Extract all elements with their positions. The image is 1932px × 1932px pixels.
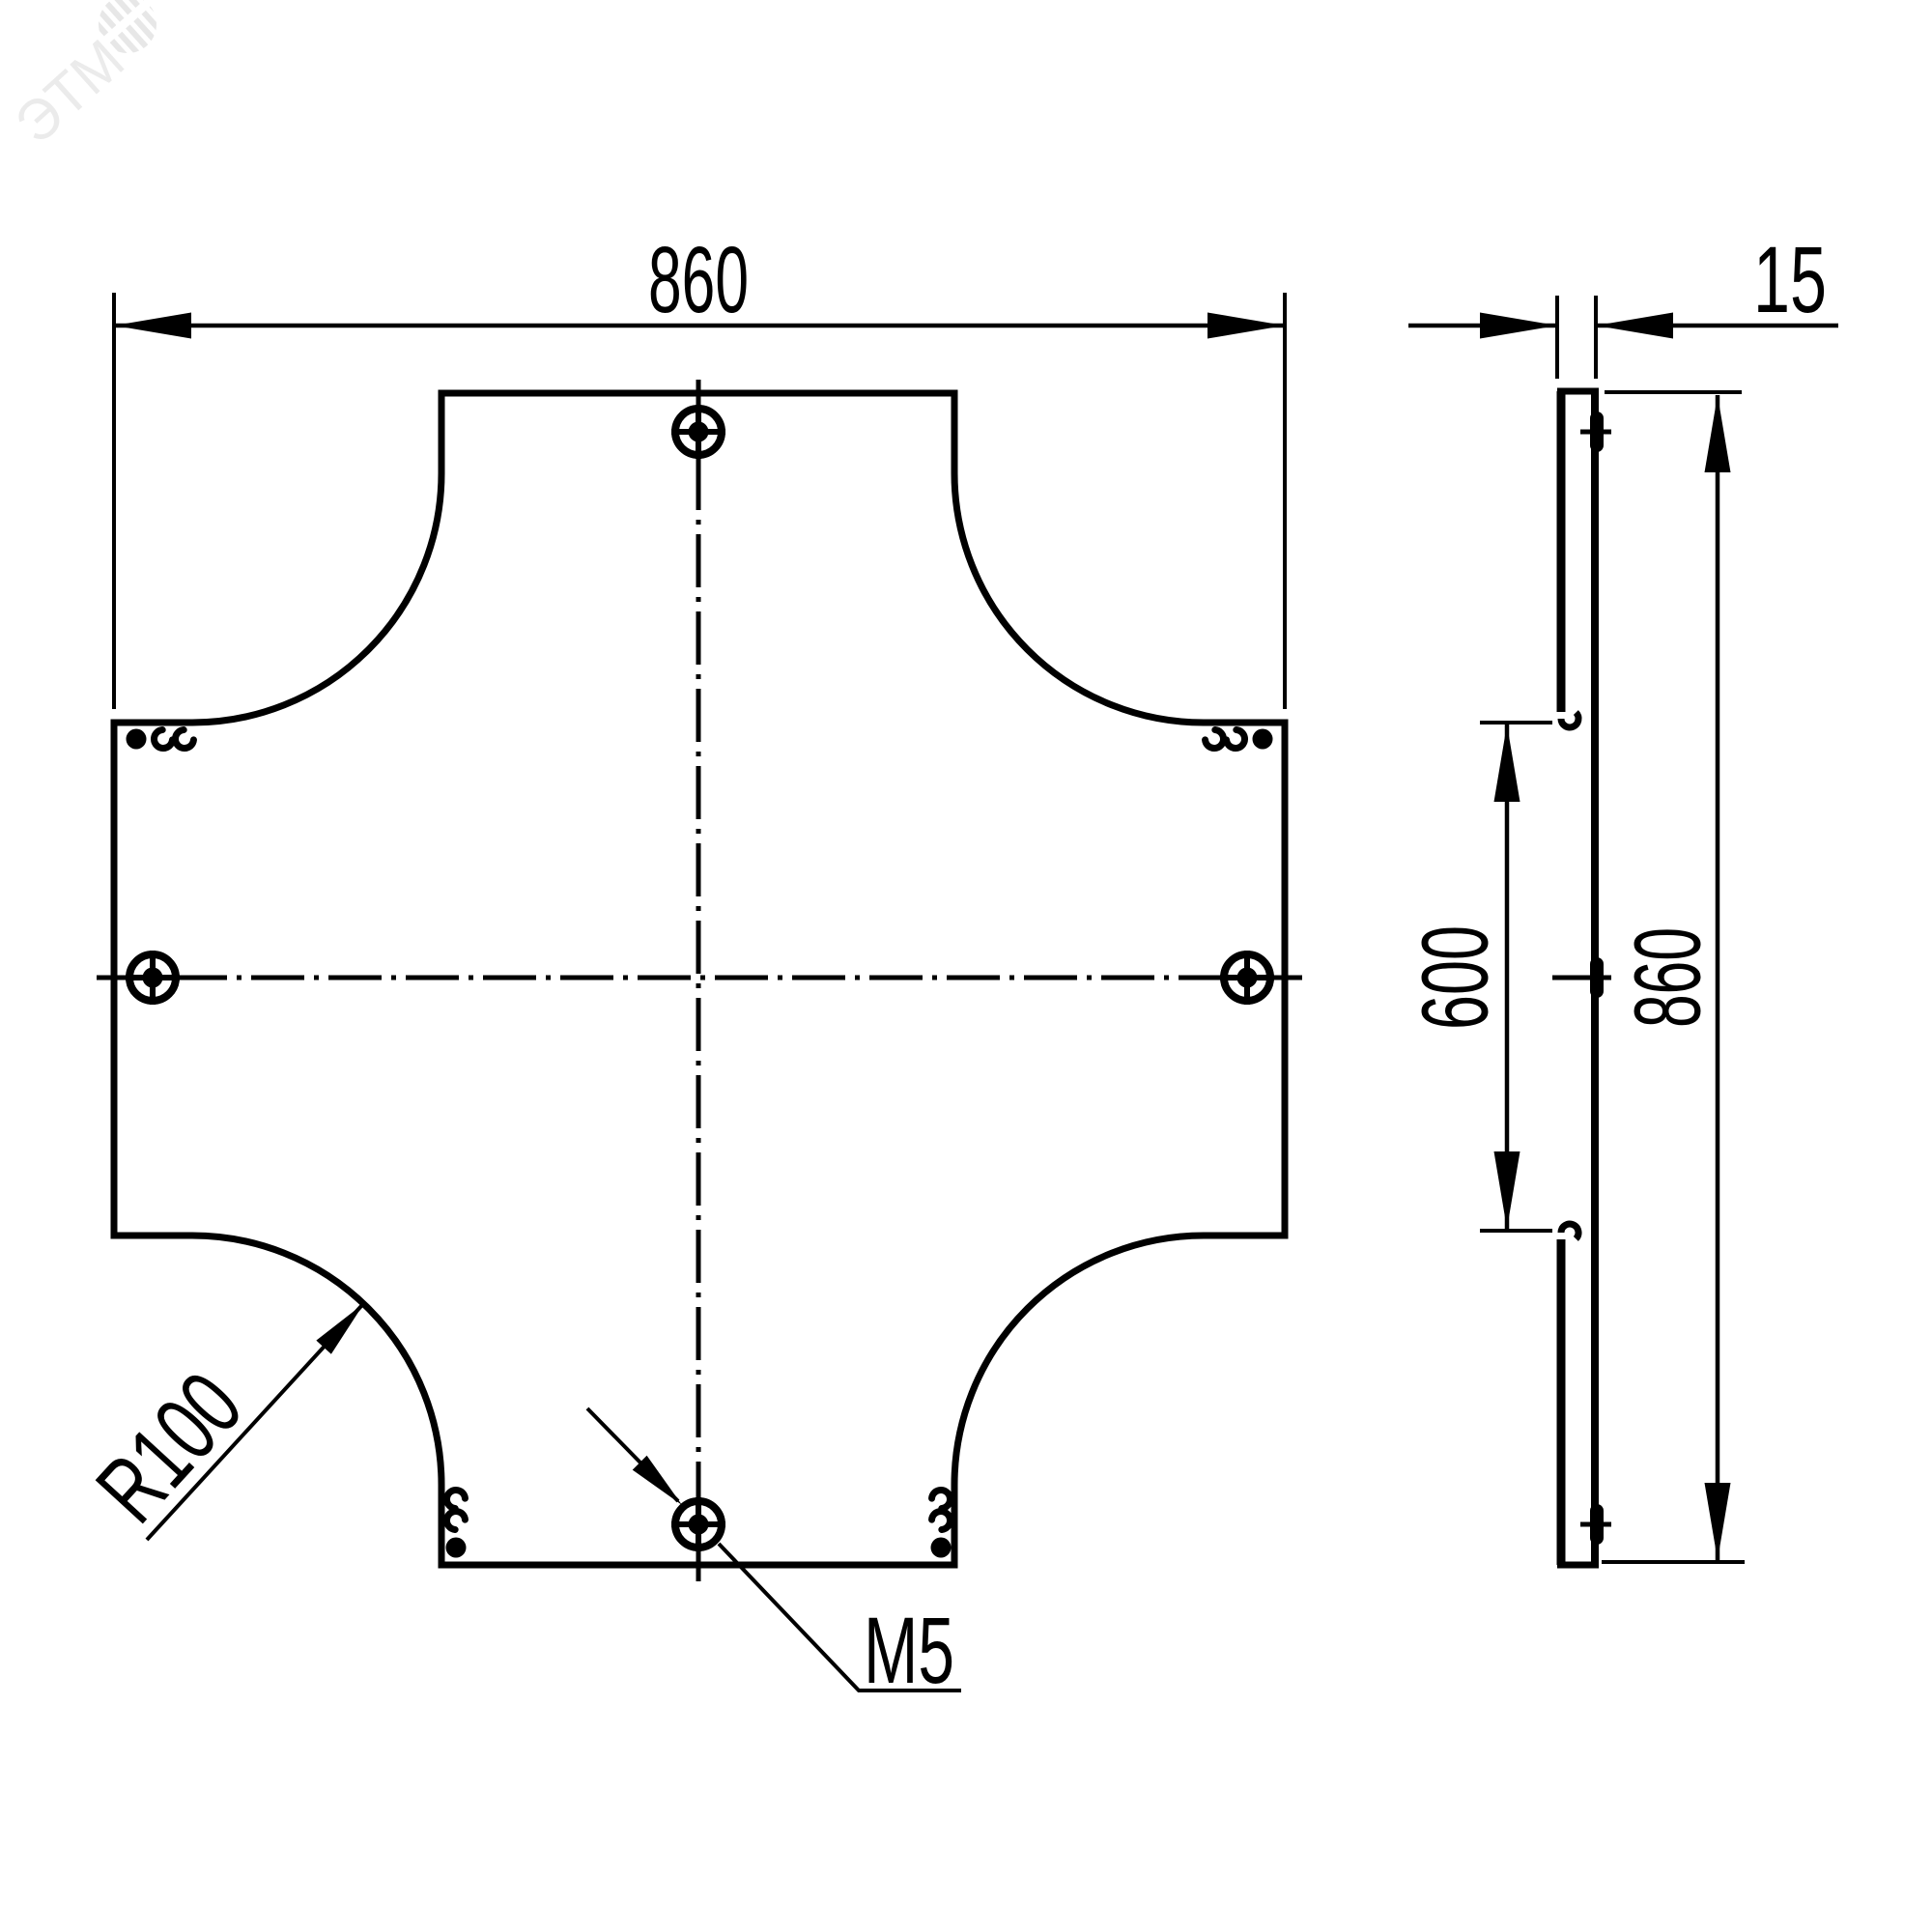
side-hem-bottom — [1561, 1224, 1578, 1238]
arrowhead-top — [1494, 724, 1520, 802]
arrowhead-bottom — [1494, 1151, 1520, 1229]
screw-hole-right — [1220, 951, 1274, 1005]
technical-drawing: ЭТМ — [0, 0, 1932, 1932]
dim-side-opening-label: 600 — [1403, 925, 1508, 1030]
side-view: 15 600 860 — [1403, 227, 1839, 1565]
thread-callout: M5 — [587, 1408, 961, 1703]
weld-marks-top-left — [127, 729, 194, 750]
radius-label: R100 — [76, 1352, 262, 1541]
dim-side-thickness-label: 15 — [1753, 227, 1827, 332]
side-screw-bottom — [1580, 1504, 1611, 1545]
watermark: ЭТМ — [3, 0, 157, 156]
side-hem-top — [1561, 713, 1578, 727]
dim-plan-width-label: 860 — [648, 227, 749, 332]
weld-marks-bottom-left — [446, 1490, 467, 1557]
dim-side-height: 860 — [1602, 392, 1745, 1562]
arrowhead-left — [1480, 313, 1557, 339]
arrowhead-top — [1705, 395, 1731, 472]
arrowhead-right — [1596, 313, 1673, 339]
plan-view: 860 R100 M5 — [76, 227, 1302, 1703]
side-screw-top — [1580, 412, 1611, 452]
weld-marks-top-right — [1206, 729, 1273, 750]
screw-hole-bottom — [671, 1497, 725, 1551]
arrowhead-left — [114, 313, 191, 339]
radius-callout: R100 — [76, 1296, 372, 1542]
dim-side-thickness: 15 — [1408, 227, 1838, 379]
thread-label: M5 — [864, 1598, 954, 1703]
screw-hole-top — [671, 405, 725, 459]
arrowhead-bottom — [1705, 1483, 1731, 1560]
dim-side-height-label: 860 — [1615, 927, 1720, 1028]
dim-side-opening: 600 — [1403, 723, 1553, 1231]
weld-marks-bottom-right — [931, 1490, 952, 1557]
thread-arrowhead — [633, 1456, 690, 1513]
arrowhead-right — [1207, 313, 1285, 339]
screw-hole-left — [126, 951, 180, 1005]
side-screw-middle — [1552, 957, 1611, 998]
